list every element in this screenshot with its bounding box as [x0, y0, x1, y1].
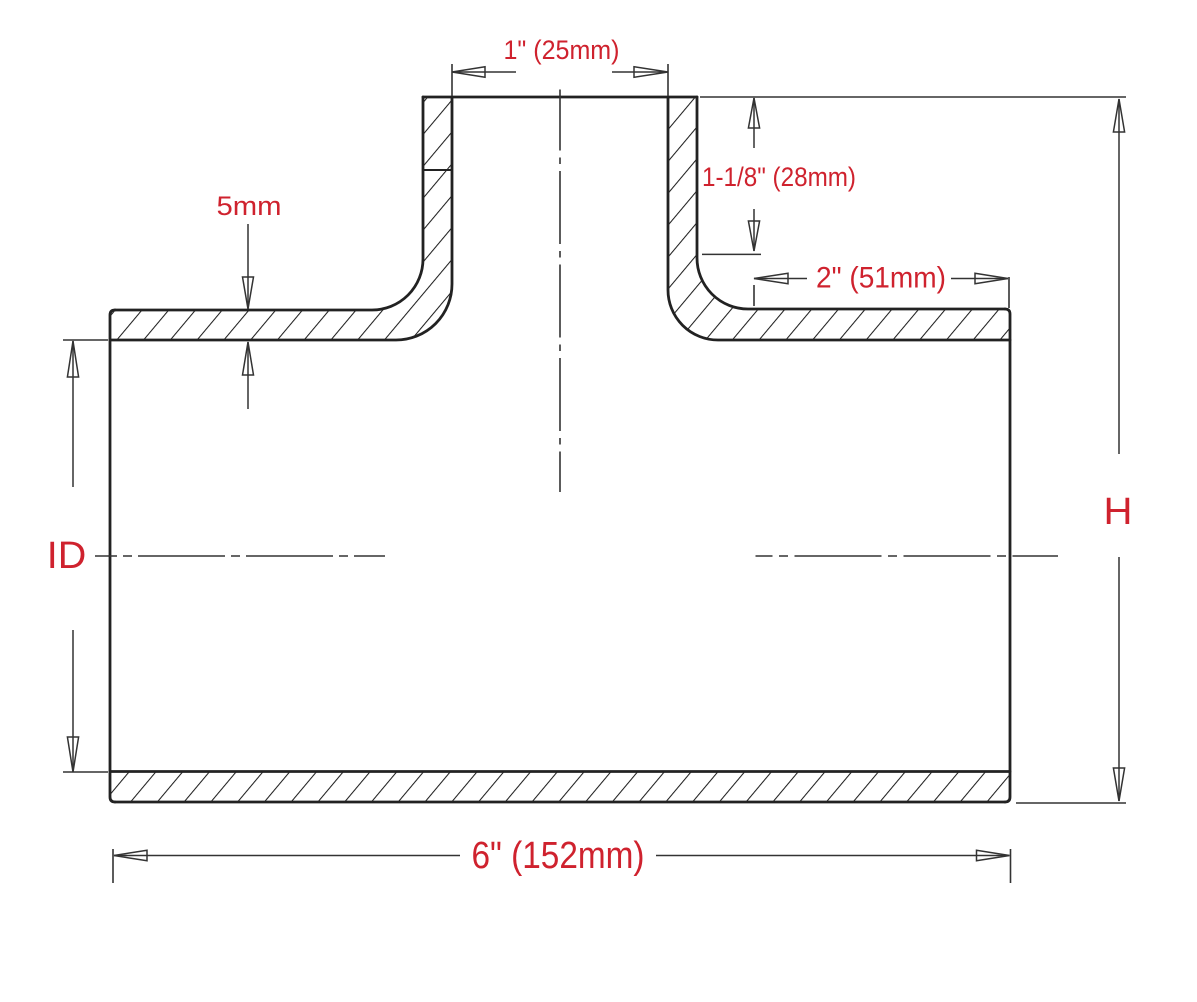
- svg-text:6" (152mm): 6" (152mm): [472, 835, 645, 877]
- svg-text:2" (51mm): 2" (51mm): [816, 262, 946, 295]
- svg-text:1" (25mm): 1" (25mm): [504, 35, 620, 65]
- svg-text:H: H: [1104, 491, 1133, 533]
- svg-text:5mm: 5mm: [217, 191, 282, 221]
- svg-text:ID: ID: [47, 535, 87, 577]
- svg-text:1-1/8" (28mm): 1-1/8" (28mm): [702, 162, 856, 192]
